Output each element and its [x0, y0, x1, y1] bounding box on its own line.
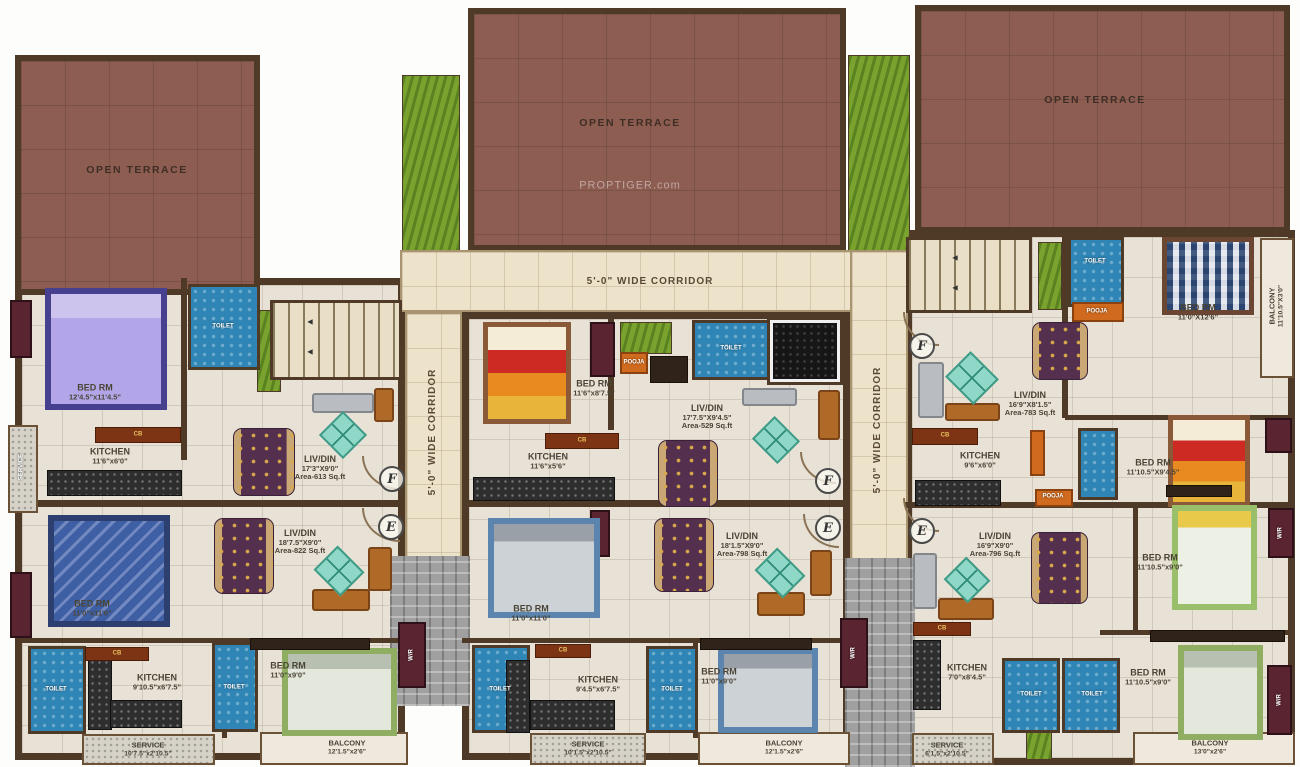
grass-planter	[620, 322, 672, 354]
room-label: LIV/DIN17'3"X9'0"Area-613 Sq.ft	[295, 454, 345, 482]
room-label: BED RM11'0"X12'6"	[1178, 302, 1218, 321]
cupboard-label: CB	[941, 432, 950, 439]
room-label: TOILET	[1081, 691, 1102, 698]
wall	[462, 500, 850, 507]
room-label: BED RM11'0"x11'0"	[511, 603, 550, 622]
open-terrace-middle	[468, 8, 846, 251]
wardrobe	[10, 300, 32, 358]
wardrobe-label: W/R	[408, 649, 415, 661]
sofa	[368, 547, 392, 591]
room-label: KITCHEN11'6"x6'0"	[90, 446, 130, 465]
cupboard-label: CB	[938, 625, 947, 632]
room-label: LIV/DIN17'7.5"X9'4.5"Area-529 Sq.ft	[682, 403, 732, 431]
sofa	[945, 403, 1000, 421]
wardrobe-label: W/R	[1277, 527, 1284, 539]
floor-plan: OPEN TERRACEOPEN TERRACEOPEN TERRACEPROP…	[0, 0, 1300, 767]
room-label: TOILET	[489, 686, 510, 693]
room-label: BED RM11'10.5"X9'4.5"	[1127, 457, 1180, 476]
dining-table	[658, 440, 718, 507]
room-label: KITCHEN9'4.5"x6'7.5"	[576, 674, 620, 693]
room-label: SERVICE6'1.5"x2'10.5"	[925, 742, 969, 759]
room-label: BED RM11'0"x9'0"	[270, 660, 306, 679]
grass-strip	[848, 55, 910, 251]
room-label: LIV/DIN18'7.5"X9'0"Area-822 Sq.ft	[275, 528, 325, 556]
console	[250, 638, 370, 650]
room-label: KITCHEN11'6"x5'6"	[528, 451, 568, 470]
terrace-label: OPEN TERRACE	[86, 164, 187, 176]
dining-table	[654, 518, 714, 592]
kitchen-counter	[506, 660, 530, 733]
wardrobe-label: W/R	[1276, 694, 1283, 706]
room-label: POOJA	[1042, 493, 1063, 500]
room-label: BED RM11'10.5"x9'0"	[1125, 667, 1171, 686]
stair-arrow-icon: ◄	[951, 253, 960, 264]
kitchen-counter	[913, 640, 941, 710]
grass-planter	[1038, 242, 1062, 310]
room-label: LIV/DIN18'1.5"X9'0"Area-798 Sq.ft	[717, 531, 767, 559]
room-label: SERVICE10'1.5"x2'10.5"	[564, 741, 611, 758]
stair-arrow-icon: ◄	[306, 317, 315, 328]
grass-strip	[402, 75, 460, 251]
wall	[181, 278, 187, 460]
open-terrace-right	[915, 5, 1290, 233]
room-label: TOILET	[212, 323, 233, 330]
cupboard-label: CB	[578, 437, 587, 444]
kitchen-counter	[47, 470, 182, 496]
sofa	[374, 388, 394, 422]
kitchen-counter	[88, 658, 112, 730]
unit-marker-e: E	[815, 515, 841, 541]
tv-unit	[650, 356, 688, 383]
corridor-label: 5'-0" WIDE CORRIDOR	[587, 276, 714, 288]
watermark: PROPTIGER.com	[579, 180, 681, 193]
room-label: BALCONY13'0"x2'6"	[1191, 740, 1228, 757]
unit-marker-e: E	[909, 518, 935, 544]
room-label: BALCONY11'10.5"X3'0"	[1269, 285, 1286, 327]
stair-arrow-icon: ◄	[951, 283, 960, 294]
cupboard-label: CB	[113, 650, 122, 657]
console	[1166, 485, 1232, 497]
dining-table	[1031, 532, 1088, 604]
stair-arrow-icon: ◄	[306, 347, 315, 358]
room-label: BED RM11'6"x8'7.5"	[573, 378, 615, 397]
dining-table	[233, 428, 295, 496]
room-label: LIV/DIN16'9"X8'1.5"Area-783 Sq.ft	[1005, 390, 1055, 418]
room-label: BALCONY12'1.5"x2'6"	[765, 740, 803, 757]
unit-marker-f: F	[815, 468, 841, 494]
wardrobe	[10, 572, 32, 638]
bed	[1178, 645, 1263, 740]
sofa	[913, 553, 937, 609]
room-label: KITCHEN9'6"x6'0"	[960, 450, 1000, 469]
room-label: SERVICE	[18, 454, 25, 480]
room-label: BED RM12'4.5"x11'4.5"	[69, 382, 121, 401]
lift	[770, 320, 840, 382]
room-label: BALCONY12'1.5"x2'6"	[328, 740, 366, 757]
unit-marker-e: E	[378, 514, 404, 540]
room-label: TOILET	[720, 345, 741, 352]
bed	[483, 322, 571, 424]
toilet-room	[1068, 237, 1124, 307]
kitchen-counter	[473, 477, 615, 501]
kitchen-counter	[110, 700, 182, 728]
unit-marker-f: F	[909, 333, 935, 359]
bed	[1172, 505, 1257, 610]
room-label: KITCHEN7'0"x8'4.5"	[947, 662, 987, 681]
cupboard-label: CB	[559, 647, 568, 654]
room-label: KITCHEN9'10.5"x6'7.5"	[133, 672, 181, 691]
terrace-label: OPEN TERRACE	[1044, 94, 1145, 106]
toilet-room	[1078, 428, 1118, 500]
room-label: BED RM11'0"x9'0"	[701, 666, 737, 685]
dining-table	[214, 518, 274, 594]
room-label: BED RM11'10.5"x9'0"	[1137, 552, 1183, 571]
wall	[15, 500, 405, 507]
room-label: POOJA	[1086, 308, 1107, 315]
room-label: POOJA	[623, 359, 644, 366]
console	[700, 638, 812, 650]
sofa	[918, 362, 944, 418]
room-label: TOILET	[1084, 258, 1105, 265]
sofa	[742, 388, 797, 406]
terrace-label: OPEN TERRACE	[579, 117, 680, 129]
wardrobe	[1265, 418, 1292, 453]
unit-marker-f: F	[379, 466, 405, 492]
wardrobe-label: W/R	[850, 647, 857, 659]
sofa	[810, 550, 832, 596]
room-label: BED RM11'0"x11'0"	[72, 598, 111, 617]
dining-table	[1032, 322, 1088, 380]
wardrobe	[590, 322, 615, 377]
console	[1150, 630, 1285, 642]
kitchen-counter	[530, 700, 615, 730]
corridor-label: 5'-0" WIDE CORRIDOR	[427, 369, 439, 496]
room-label: LIV/DIN16'9"X9'0"Area-796 Sq.ft	[970, 531, 1020, 559]
room-label: TOILET	[1020, 691, 1041, 698]
staircase-left	[270, 300, 402, 380]
sofa	[818, 390, 840, 440]
cupboard-label: CB	[134, 431, 143, 438]
room-label: TOILET	[45, 686, 66, 693]
corridor-label: 5'-0" WIDE CORRIDOR	[872, 367, 884, 494]
staircase-right	[906, 237, 1032, 313]
bed	[718, 648, 818, 733]
room-label: TOILET	[223, 684, 244, 691]
room-label: TOILET	[661, 686, 682, 693]
room-label: SERVICE10'7.5"x2'10.5"	[124, 742, 171, 759]
pooja-room	[1030, 430, 1045, 476]
